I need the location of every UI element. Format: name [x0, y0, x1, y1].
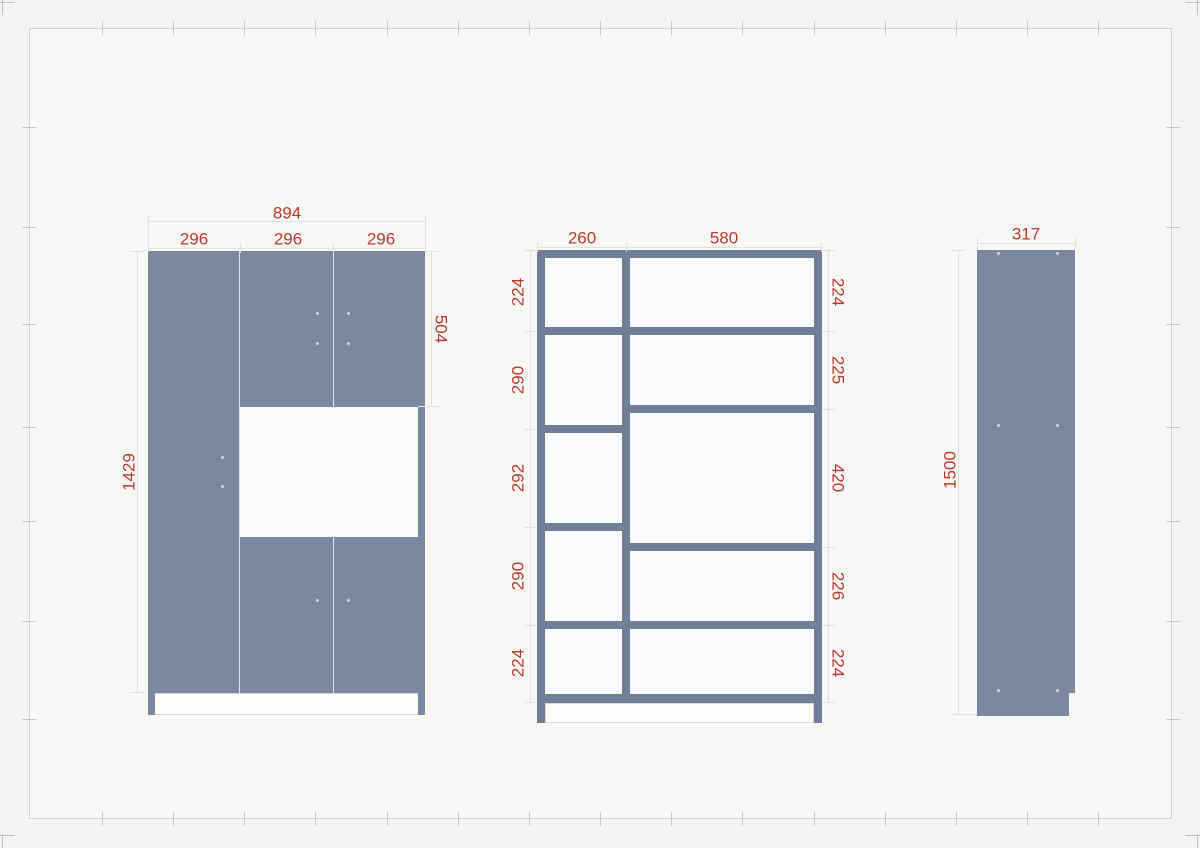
dim-ext — [1075, 238, 1076, 250]
dim-ext — [822, 625, 835, 626]
ruler-tick-left — [22, 227, 36, 228]
ruler-tick-bottom — [458, 812, 459, 826]
ruler-tick-bottom — [885, 812, 886, 826]
dim-label-front-section-3: 296 — [367, 231, 395, 248]
dim-label-front-section-1: 296 — [180, 231, 208, 248]
ruler-tick-top — [885, 21, 886, 35]
front-fitting-dot — [316, 312, 319, 315]
dim-label-carcass-left-row-3: 292 — [510, 464, 527, 492]
dim-label-front-overall-width: 894 — [273, 205, 301, 222]
carcass-shelf — [630, 543, 814, 551]
front-fitting-dot — [347, 312, 350, 315]
ruler-tick-bottom — [102, 812, 103, 826]
side-fitting-dot — [997, 424, 1000, 427]
carcass-shelf — [630, 327, 814, 335]
dim-ext — [822, 702, 835, 703]
dim-line — [530, 250, 531, 703]
side-view-panel — [977, 250, 1075, 693]
dim-ext — [822, 547, 835, 548]
ruler-tick-bottom — [1027, 812, 1028, 826]
dim-label-carcass-right-row-3: 420 — [830, 464, 847, 492]
dim-ext — [524, 702, 537, 703]
ruler-tick-right — [1166, 719, 1180, 720]
ruler-tick-top — [387, 21, 388, 35]
dim-ext — [240, 243, 241, 253]
ruler-tick-top — [742, 21, 743, 35]
ruler-tick-left — [22, 427, 36, 428]
ruler-tick-left — [22, 621, 36, 622]
ruler-tick-bottom — [173, 812, 174, 826]
corner-mark — [1197, 834, 1198, 848]
dim-label-front-upper-height: 504 — [433, 315, 450, 343]
dim-label-side-height: 1500 — [942, 451, 959, 489]
dim-label-front-height: 1429 — [121, 453, 138, 491]
dim-ext — [951, 714, 977, 715]
dim-label-carcass-right-row-5: 224 — [830, 649, 847, 677]
ruler-tick-top — [315, 21, 316, 35]
dim-ext — [524, 625, 537, 626]
ruler-tick-top — [814, 21, 815, 35]
side-fitting-dot — [997, 252, 1000, 255]
ruler-tick-top — [1027, 21, 1028, 35]
front-leg-left — [148, 693, 155, 715]
ruler-tick-right — [1166, 227, 1180, 228]
front-fitting-dot — [347, 599, 350, 602]
ruler-tick-left — [22, 719, 36, 720]
dim-ext — [130, 251, 144, 252]
front-niche-cutout — [240, 407, 418, 537]
dim-ext — [524, 527, 537, 528]
dim-ext — [524, 429, 537, 430]
ruler-tick-right — [1166, 324, 1180, 325]
carcass-right-side — [814, 250, 822, 723]
dim-label-side-depth: 317 — [1012, 226, 1040, 243]
carcass-shelf — [545, 621, 622, 629]
dim-label-carcass-right-row-2: 225 — [830, 356, 847, 384]
ruler-tick-bottom — [315, 812, 316, 826]
ruler-tick-left — [22, 324, 36, 325]
front-fitting-dot — [347, 342, 350, 345]
dim-ext — [130, 692, 144, 693]
dim-label-carcass-left-row-4: 290 — [510, 562, 527, 590]
dim-ext — [524, 331, 537, 332]
ruler-tick-left — [22, 127, 36, 128]
carcass-bottom-rail — [537, 694, 822, 703]
dim-label-carcass-right-row-1: 224 — [830, 278, 847, 306]
dim-label-carcass-left-row-5: 224 — [510, 649, 527, 677]
front-leg-right — [418, 693, 425, 715]
front-fitting-dot — [316, 342, 319, 345]
ruler-tick-top — [244, 21, 245, 35]
front-fitting-dot — [221, 485, 224, 488]
corner-mark — [2, 834, 3, 848]
drawing-sheet: 894 296 296 296 1429 504 260 580 224 290… — [0, 0, 1200, 848]
carcass-shelf — [545, 523, 622, 531]
dim-ext — [537, 242, 538, 252]
dim-ext — [822, 409, 835, 410]
carcass-top-rail — [537, 250, 822, 258]
ruler-tick-bottom — [814, 812, 815, 826]
side-fitting-dot — [997, 689, 1000, 692]
carcass-shelf — [545, 425, 622, 433]
carcass-left-side — [537, 250, 545, 723]
ruler-tick-top — [671, 21, 672, 35]
carcass-mid-partition — [622, 250, 630, 703]
dim-ext — [626, 242, 627, 252]
dim-ext — [333, 243, 334, 253]
ruler-tick-top — [1098, 21, 1099, 35]
dim-ext — [425, 216, 426, 252]
corner-mark — [1197, 0, 1198, 15]
carcass-plinth — [545, 703, 814, 723]
dim-label-carcass-right-row-4: 226 — [830, 572, 847, 600]
ruler-tick-top — [173, 21, 174, 35]
front-fitting-dot — [221, 456, 224, 459]
dim-ext — [822, 331, 835, 332]
dim-label-front-section-2: 296 — [274, 231, 302, 248]
dim-ext — [418, 406, 439, 407]
front-fitting-dot — [316, 599, 319, 602]
dim-label-carcass-left-row-2: 290 — [510, 366, 527, 394]
ruler-tick-bottom — [671, 812, 672, 826]
ruler-tick-right — [1166, 127, 1180, 128]
corner-mark — [2, 0, 3, 15]
ruler-tick-bottom — [956, 812, 957, 826]
side-view-panel-base — [977, 693, 1069, 716]
dim-ext — [524, 250, 537, 251]
dim-ext — [977, 238, 978, 250]
ruler-tick-left — [22, 521, 36, 522]
ruler-tick-top — [600, 21, 601, 35]
carcass-shelf — [630, 621, 814, 629]
carcass-shelf — [630, 405, 814, 413]
ruler-tick-bottom — [1098, 812, 1099, 826]
dim-ext — [951, 250, 965, 251]
ruler-tick-top — [102, 21, 103, 35]
side-fitting-dot — [1056, 424, 1059, 427]
ruler-tick-top — [529, 21, 530, 35]
ruler-tick-right — [1166, 621, 1180, 622]
ruler-tick-top — [956, 21, 957, 35]
dim-ext — [148, 216, 149, 252]
ruler-tick-bottom — [387, 812, 388, 826]
ruler-tick-bottom — [244, 812, 245, 826]
dim-label-carcass-left-width: 260 — [568, 230, 596, 247]
carcass-interior — [537, 250, 822, 703]
dim-ext — [425, 251, 439, 252]
dim-label-carcass-left-row-1: 224 — [510, 278, 527, 306]
ruler-tick-bottom — [529, 812, 530, 826]
front-plinth — [148, 693, 425, 715]
carcass-shelf — [545, 327, 622, 335]
side-fitting-dot — [1056, 252, 1059, 255]
ruler-tick-right — [1166, 521, 1180, 522]
dim-ext — [822, 250, 835, 251]
ruler-tick-bottom — [742, 812, 743, 826]
dim-label-carcass-right-width: 580 — [710, 230, 738, 247]
ruler-tick-top — [458, 21, 459, 35]
ruler-tick-right — [1166, 427, 1180, 428]
side-fitting-dot — [1056, 689, 1059, 692]
ruler-tick-bottom — [600, 812, 601, 826]
